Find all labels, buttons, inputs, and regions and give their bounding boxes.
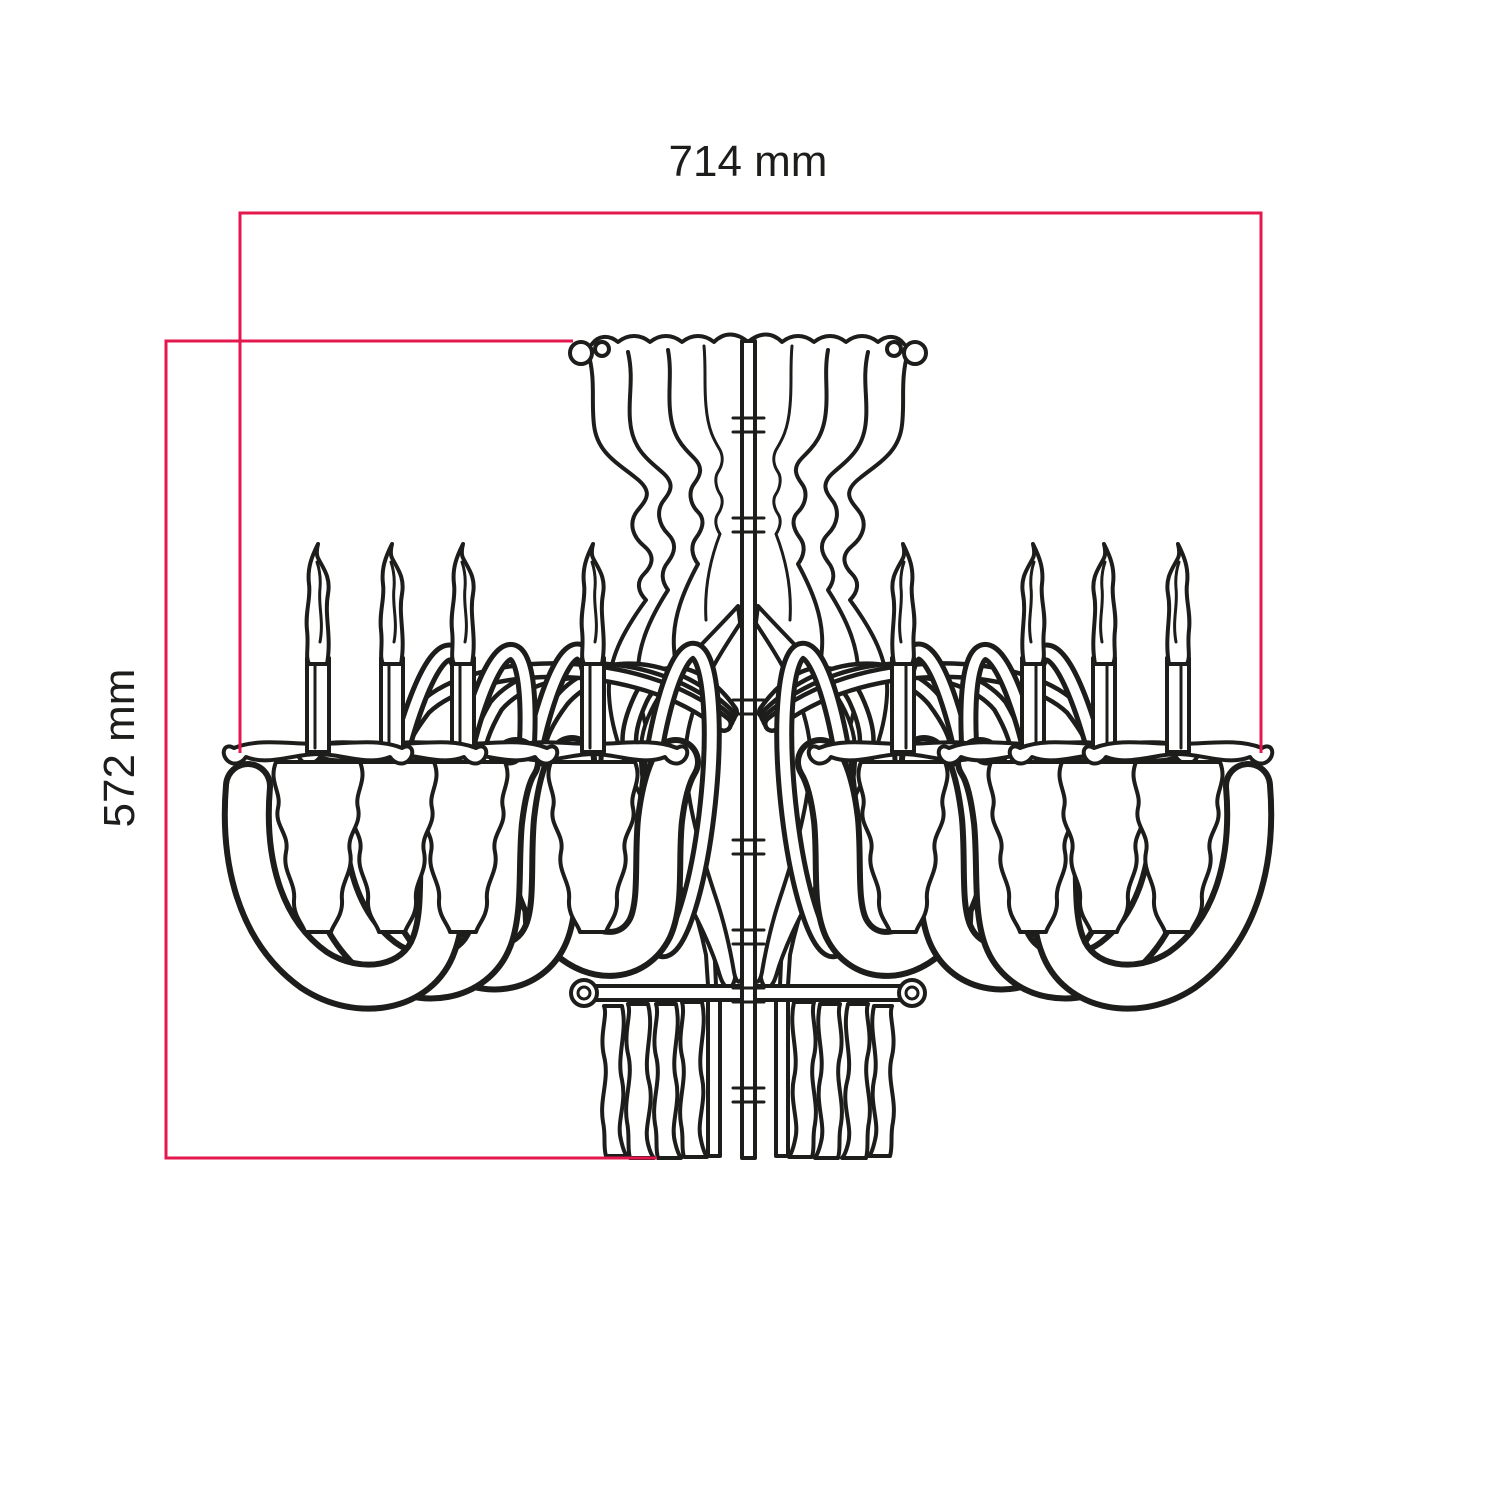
technical-drawing-page: 714 mm 572 mm <box>0 0 1500 1500</box>
chandelier-right-half <box>746 335 1272 1159</box>
chandelier-technical-drawing <box>0 0 1500 1500</box>
chandelier-left-half <box>224 335 750 1159</box>
